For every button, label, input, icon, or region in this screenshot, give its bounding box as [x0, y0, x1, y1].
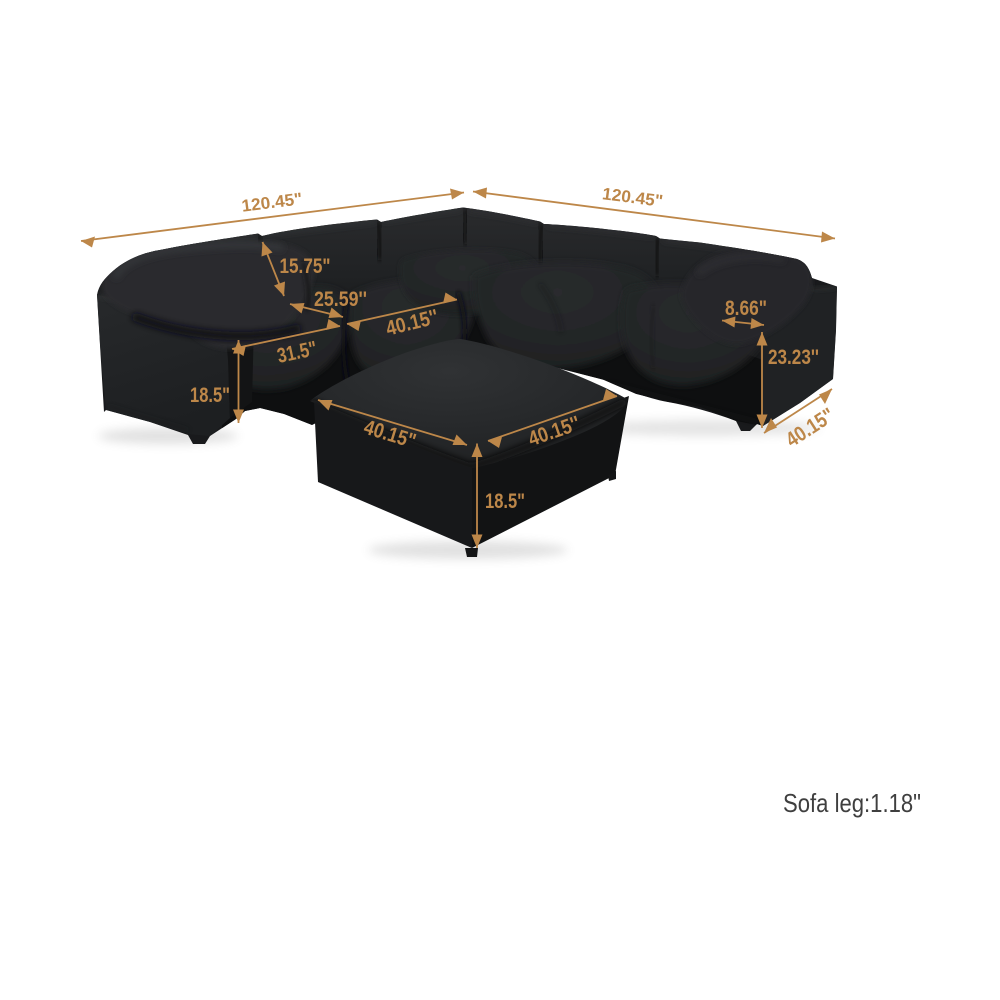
svg-text:8.66": 8.66" [725, 297, 767, 320]
svg-text:120.45": 120.45" [240, 189, 303, 215]
svg-text:120.45": 120.45" [601, 184, 664, 211]
svg-text:18.5": 18.5" [485, 490, 525, 513]
svg-text:18.5": 18.5" [190, 384, 230, 407]
svg-text:23.23'': 23.23'' [768, 346, 819, 369]
svg-text:25.59'': 25.59'' [314, 288, 367, 311]
svg-text:15.75": 15.75" [280, 255, 331, 278]
svg-text:40.15": 40.15" [782, 404, 839, 452]
svg-text:Sofa leg:1.18": Sofa leg:1.18" [783, 788, 921, 818]
